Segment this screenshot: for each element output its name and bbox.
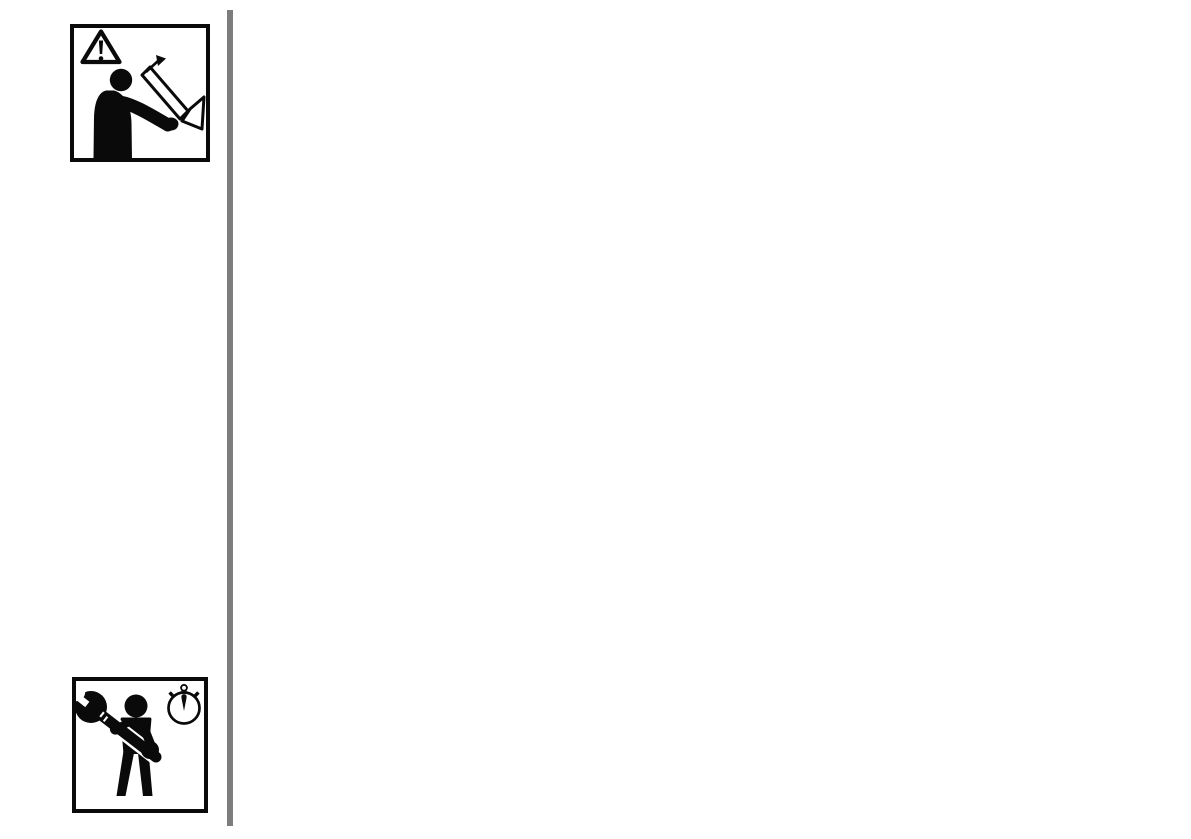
exclamation-dot <box>99 56 104 61</box>
person-reading-manual-icon <box>94 55 205 158</box>
person-left-hand <box>110 723 121 734</box>
exclamation-bar <box>99 41 103 55</box>
stopwatch-crown <box>181 685 187 691</box>
stopwatch-right-button <box>195 692 198 695</box>
stopwatch-icon <box>169 685 200 724</box>
page-turn-arrow-head <box>156 55 166 66</box>
service-pictogram-svg <box>76 681 204 809</box>
person-with-wrench-icon <box>76 683 159 796</box>
person-hand <box>164 118 179 131</box>
person-head <box>125 695 148 718</box>
stopwatch-left-button <box>170 692 173 695</box>
warning-triangle-icon <box>83 32 120 63</box>
vertical-divider-rule <box>227 10 233 826</box>
read-manual-pictogram-svg <box>74 28 206 158</box>
person-left-leg <box>117 751 135 796</box>
service-wrench-pictogram <box>72 677 208 813</box>
person-head <box>110 69 132 91</box>
read-manual-pictogram <box>70 24 210 162</box>
manual-page <box>0 0 1191 839</box>
